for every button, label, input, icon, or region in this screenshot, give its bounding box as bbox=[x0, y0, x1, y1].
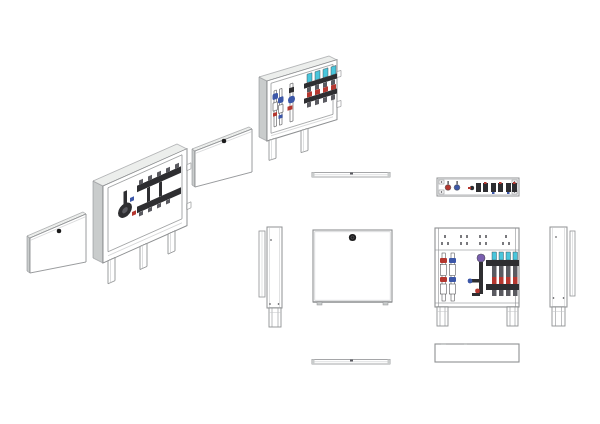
drawing-canvas bbox=[0, 0, 600, 424]
front-view-cabinet bbox=[435, 228, 519, 326]
lock-knob-icon bbox=[57, 229, 62, 234]
iso-cabinet-open-manifold bbox=[259, 56, 341, 163]
bottom-view-cabinet bbox=[435, 344, 519, 363]
top-view-cabinet bbox=[437, 178, 519, 196]
iso-cover-panel-left bbox=[27, 212, 86, 273]
pump-icon bbox=[477, 254, 485, 262]
cabinet-legs bbox=[437, 307, 518, 326]
drawing-sheet bbox=[0, 0, 600, 424]
front-view-cover bbox=[313, 230, 392, 305]
bottom-view-cover bbox=[312, 360, 390, 365]
side-view-left bbox=[259, 227, 282, 327]
lock-knob bbox=[349, 234, 356, 241]
cabinet-leg-profile bbox=[552, 307, 565, 326]
iso-cover-panel-middle bbox=[192, 127, 252, 187]
lock-knob-icon bbox=[222, 139, 227, 144]
top-view-cover bbox=[312, 173, 390, 178]
cabinet-leg-profile bbox=[269, 308, 281, 327]
iso-cabinet-open-pump bbox=[93, 144, 191, 286]
side-view-right bbox=[550, 227, 575, 326]
lock-knob-top bbox=[350, 173, 353, 175]
